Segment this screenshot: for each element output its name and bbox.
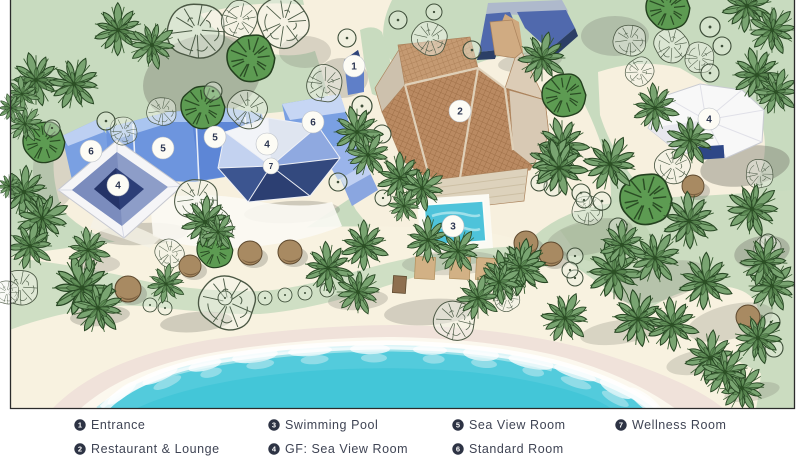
svg-text:5: 5 bbox=[160, 144, 166, 155]
svg-text:Standard Room: Standard Room bbox=[469, 442, 564, 456]
svg-text:2: 2 bbox=[457, 107, 463, 118]
svg-text:4: 4 bbox=[115, 181, 121, 192]
svg-text:3: 3 bbox=[450, 222, 456, 233]
svg-text:1: 1 bbox=[351, 62, 357, 73]
svg-text:GF: Sea View Room: GF: Sea View Room bbox=[285, 442, 408, 456]
svg-text:7: 7 bbox=[619, 421, 623, 430]
svg-text:2: 2 bbox=[78, 445, 82, 454]
svg-text:7: 7 bbox=[269, 162, 274, 171]
svg-text:Wellness Room: Wellness Room bbox=[632, 418, 726, 432]
svg-text:Restaurant & Lounge: Restaurant & Lounge bbox=[91, 442, 220, 456]
svg-text:4: 4 bbox=[264, 140, 270, 151]
svg-text:Entrance: Entrance bbox=[91, 418, 145, 432]
svg-text:1: 1 bbox=[78, 421, 82, 430]
svg-text:Sea View Room: Sea View Room bbox=[469, 418, 566, 432]
svg-text:5: 5 bbox=[212, 133, 218, 144]
svg-text:6: 6 bbox=[88, 147, 94, 158]
svg-text:3: 3 bbox=[272, 421, 276, 430]
svg-text:Swimming Pool: Swimming Pool bbox=[285, 418, 378, 432]
svg-text:6: 6 bbox=[456, 445, 460, 454]
svg-text:6: 6 bbox=[310, 118, 316, 129]
svg-text:4: 4 bbox=[706, 115, 712, 126]
svg-text:5: 5 bbox=[456, 421, 460, 430]
